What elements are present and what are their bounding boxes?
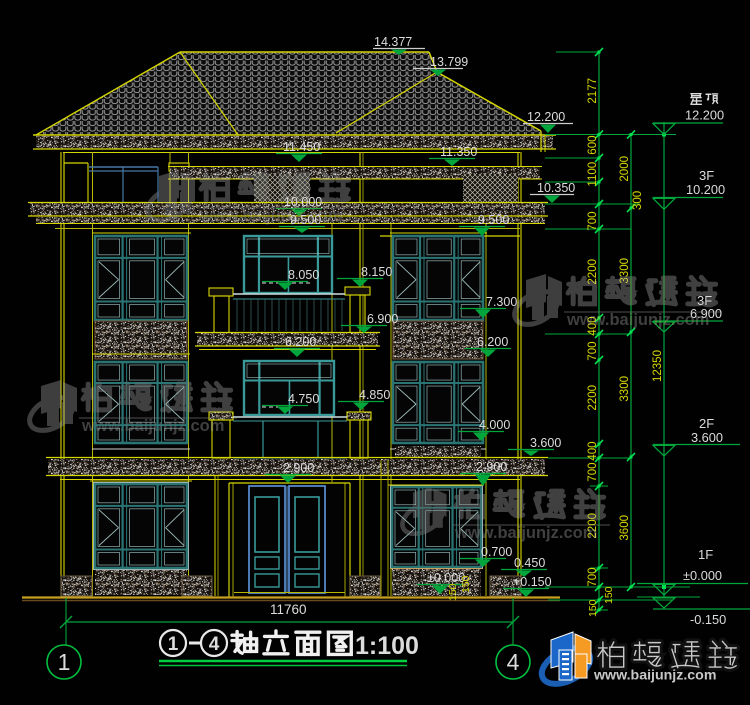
svg-text:4: 4 xyxy=(209,634,220,655)
svg-text:11760: 11760 xyxy=(270,602,307,617)
svg-text:4: 4 xyxy=(507,649,520,675)
svg-text:4.000: 4.000 xyxy=(479,418,510,432)
svg-text:4.850: 4.850 xyxy=(359,388,390,402)
svg-text:2.900: 2.900 xyxy=(476,460,507,474)
svg-text:1:100: 1:100 xyxy=(355,632,419,660)
svg-text:10.200: 10.200 xyxy=(686,182,725,197)
svg-text:www.baijunjz.com: www.baijunjz.com xyxy=(199,207,342,225)
svg-text:13.799: 13.799 xyxy=(430,55,468,69)
svg-text:6.900: 6.900 xyxy=(367,312,398,326)
svg-text:www.baijunjz.com: www.baijunjz.com xyxy=(593,668,716,684)
svg-text:300: 300 xyxy=(632,191,644,210)
svg-text:0.700: 0.700 xyxy=(481,545,512,559)
svg-text:9.500: 9.500 xyxy=(478,213,509,227)
svg-text:3.600: 3.600 xyxy=(691,430,723,445)
svg-text:3F: 3F xyxy=(699,168,714,183)
svg-text:6.200: 6.200 xyxy=(477,335,508,349)
svg-text:4.750: 4.750 xyxy=(288,392,319,406)
svg-text:www.baijunjz.com: www.baijunjz.com xyxy=(566,311,709,329)
svg-text:www.baijunjz.com: www.baijunjz.com xyxy=(81,417,224,435)
svg-text:±0.000: ±0.000 xyxy=(683,568,722,583)
svg-text:8.150: 8.150 xyxy=(361,265,392,279)
svg-text:600: 600 xyxy=(587,136,599,155)
svg-text:150: 150 xyxy=(603,586,615,604)
svg-text:2000: 2000 xyxy=(619,156,631,182)
svg-text:2.900: 2.900 xyxy=(283,461,314,475)
svg-text:2F: 2F xyxy=(699,416,714,431)
svg-text:3.600: 3.600 xyxy=(530,436,561,450)
svg-text:1F: 1F xyxy=(698,547,713,562)
svg-text:7.300: 7.300 xyxy=(486,295,517,309)
svg-text:400: 400 xyxy=(587,442,599,461)
svg-text:150: 150 xyxy=(447,583,459,601)
svg-text:2177: 2177 xyxy=(587,78,599,104)
svg-text:700: 700 xyxy=(587,342,599,361)
svg-text:11.350: 11.350 xyxy=(440,145,477,159)
svg-text:150: 150 xyxy=(460,575,472,593)
svg-text:6.200: 6.200 xyxy=(285,335,316,349)
svg-text:11.450: 11.450 xyxy=(283,140,320,154)
svg-text:12.200: 12.200 xyxy=(685,108,724,123)
svg-text:150: 150 xyxy=(587,599,599,617)
svg-text:8.050: 8.050 xyxy=(288,268,319,282)
svg-text:2200: 2200 xyxy=(587,259,599,285)
svg-text:-0.150: -0.150 xyxy=(690,612,726,627)
svg-text:1100: 1100 xyxy=(587,162,599,187)
svg-text:10.350: 10.350 xyxy=(537,181,575,195)
svg-text:700: 700 xyxy=(587,568,599,587)
svg-text:www.baijunjz.com: www.baijunjz.com xyxy=(454,524,597,542)
svg-text:3600: 3600 xyxy=(619,515,631,541)
svg-text:700: 700 xyxy=(587,463,599,482)
svg-text:1: 1 xyxy=(58,649,71,675)
svg-text:2200: 2200 xyxy=(587,385,599,411)
svg-text:1: 1 xyxy=(168,634,179,655)
svg-text:3300: 3300 xyxy=(619,376,631,402)
svg-text:14.377: 14.377 xyxy=(374,35,412,49)
svg-text:12350: 12350 xyxy=(652,350,664,382)
svg-text:700: 700 xyxy=(587,212,599,231)
svg-text:0.450: 0.450 xyxy=(514,556,545,570)
svg-text:12.200: 12.200 xyxy=(527,110,565,124)
